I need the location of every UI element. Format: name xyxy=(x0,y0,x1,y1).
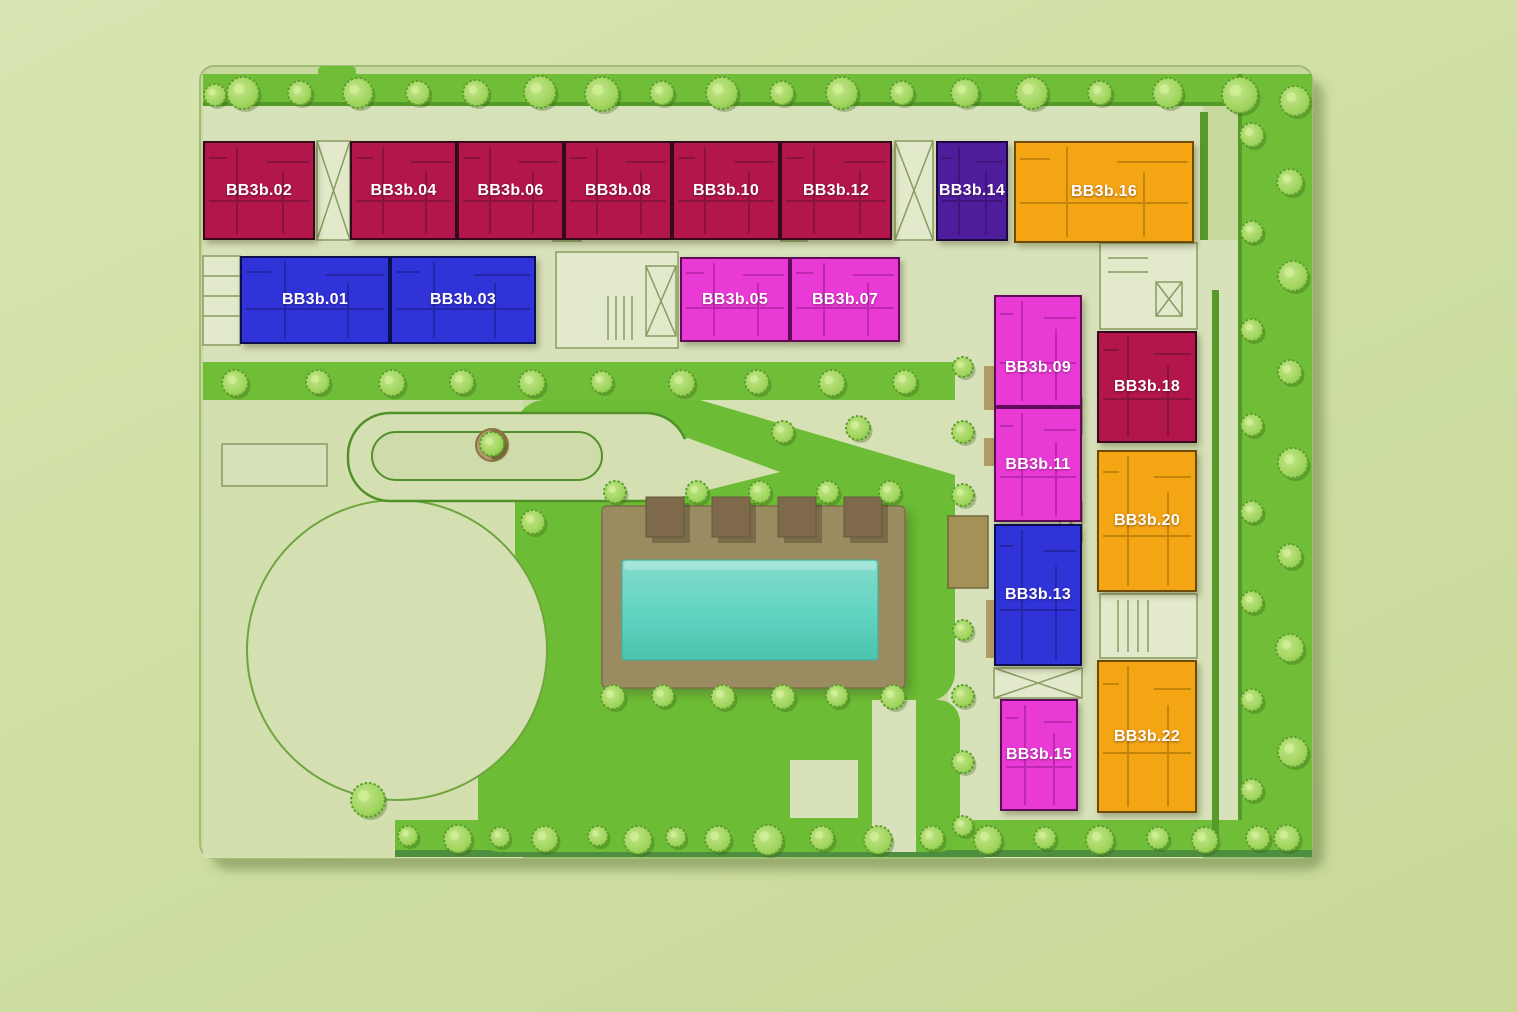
unit-bb3b-07[interactable]: BB3b.07 xyxy=(790,257,900,342)
lawn-strip-top-bump xyxy=(318,66,356,78)
unit-label: BB3b.16 xyxy=(1071,183,1137,201)
pool-waterline xyxy=(624,561,876,570)
unit-label: BB3b.08 xyxy=(585,182,651,200)
unit-bb3b-02[interactable]: BB3b.02 xyxy=(203,141,315,240)
canopy xyxy=(948,516,988,588)
unit-bb3b-10[interactable]: BB3b.10 xyxy=(672,141,780,240)
unit-label: BB3b.20 xyxy=(1114,512,1180,530)
unit-bb3b-15[interactable]: BB3b.15 xyxy=(1000,699,1078,811)
unit-bb3b-11[interactable]: BB3b.11 xyxy=(994,407,1082,522)
low-structure xyxy=(222,444,327,486)
unit-label: BB3b.14 xyxy=(939,182,1005,200)
unit-label: BB3b.05 xyxy=(702,291,768,309)
unit-label: BB3b.03 xyxy=(430,291,496,309)
circular-plaza xyxy=(247,500,547,800)
unit-bb3b-14[interactable]: BB3b.14 xyxy=(936,141,1008,241)
unit-label: BB3b.07 xyxy=(812,291,878,309)
unit-label: BB3b.12 xyxy=(803,182,869,200)
unit-bb3b-16[interactable]: BB3b.16 xyxy=(1014,141,1194,243)
unit-label: BB3b.15 xyxy=(1006,746,1072,764)
unit-label: BB3b.01 xyxy=(282,291,348,309)
unit-label: BB3b.06 xyxy=(477,182,543,200)
unit-bb3b-09[interactable]: BB3b.09 xyxy=(994,295,1082,407)
swimming-pool xyxy=(622,560,878,660)
unit-label: BB3b.18 xyxy=(1114,378,1180,396)
hedge-northeast xyxy=(1200,112,1208,240)
unit-label: BB3b.22 xyxy=(1114,728,1180,746)
unit-label: BB3b.11 xyxy=(1005,456,1070,474)
unit-label: BB3b.10 xyxy=(693,182,759,200)
unit-bb3b-08[interactable]: BB3b.08 xyxy=(564,141,672,240)
unit-label: BB3b.09 xyxy=(1005,359,1071,377)
unit-bb3b-12[interactable]: BB3b.12 xyxy=(780,141,892,240)
hedge-east xyxy=(1212,290,1219,838)
unit-bb3b-18[interactable]: BB3b.18 xyxy=(1097,331,1197,443)
path-south-1 xyxy=(790,760,858,818)
unit-label: BB3b.04 xyxy=(370,182,436,200)
lawn-strip-east-edge xyxy=(1238,74,1242,856)
unit-bb3b-06[interactable]: BB3b.06 xyxy=(457,141,564,240)
unit-bb3b-13[interactable]: BB3b.13 xyxy=(994,524,1082,666)
unit-bb3b-20[interactable]: BB3b.20 xyxy=(1097,450,1197,592)
unit-label: BB3b.02 xyxy=(226,182,292,200)
site-plan: BB3b.02 BB3b.04 BB3b.06 BB3b.08 BB3b.10 … xyxy=(0,0,1517,1012)
unit-bb3b-05[interactable]: BB3b.05 xyxy=(680,257,790,342)
unit-bb3b-04[interactable]: BB3b.04 xyxy=(350,141,457,240)
unit-bb3b-22[interactable]: BB3b.22 xyxy=(1097,660,1197,813)
unit-bb3b-01[interactable]: BB3b.01 xyxy=(240,256,390,344)
unit-bb3b-03[interactable]: BB3b.03 xyxy=(390,256,536,344)
unit-label: BB3b.13 xyxy=(1005,586,1071,604)
